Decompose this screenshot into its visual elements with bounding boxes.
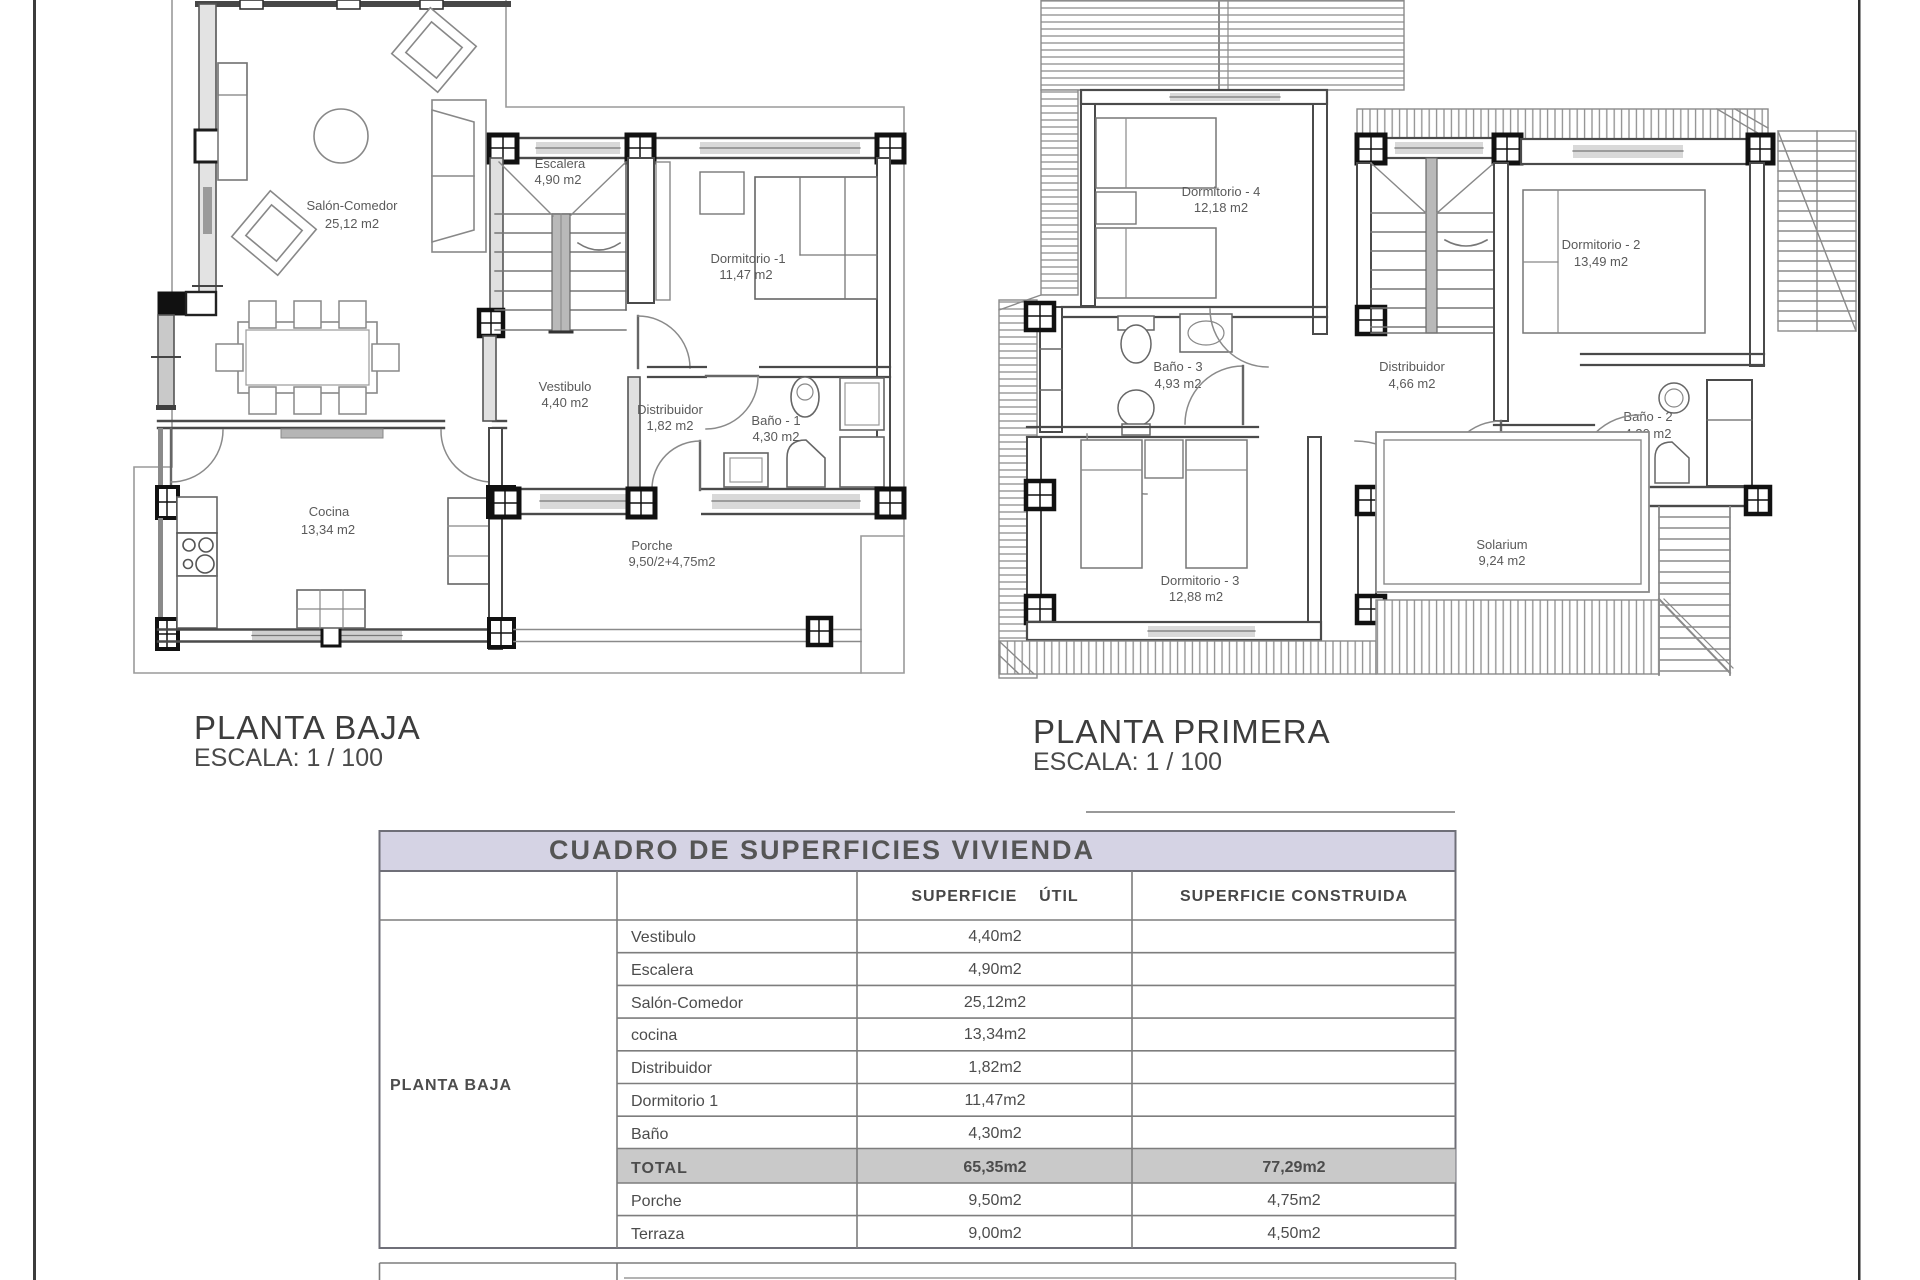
svg-text:4,90m2: 4,90m2 — [968, 961, 1021, 978]
svg-text:Dormitorio - 3: Dormitorio - 3 — [1161, 573, 1240, 588]
svg-text:12,18 m2: 12,18 m2 — [1194, 200, 1248, 215]
svg-text:CUADRO DE SUPERFICIES VIVIEND: CUADRO DE SUPERFICIES VIVIENDA — [549, 835, 1095, 865]
svg-text:Dormitorio 1: Dormitorio 1 — [631, 1093, 718, 1110]
svg-text:PLANTA PRIMERA: PLANTA PRIMERA — [1033, 713, 1331, 750]
svg-text:Solarium: Solarium — [1476, 537, 1527, 552]
svg-text:Vestibulo: Vestibulo — [539, 379, 592, 394]
svg-text:Baño: Baño — [631, 1126, 668, 1143]
svg-text:SUPERFICIE CONSTRUIDA: SUPERFICIE CONSTRUIDA — [1180, 888, 1408, 905]
svg-text:Salón-Comedor: Salón-Comedor — [631, 995, 744, 1012]
svg-text:Baño - 1: Baño - 1 — [751, 413, 800, 428]
svg-text:Baño - 3: Baño - 3 — [1153, 359, 1202, 374]
svg-text:1,82m2: 1,82m2 — [968, 1059, 1021, 1076]
svg-text:cocina: cocina — [631, 1027, 677, 1044]
svg-text:4,90 m2: 4,90 m2 — [535, 172, 582, 187]
svg-text:Dormitorio -1: Dormitorio -1 — [710, 251, 785, 266]
svg-text:Porche: Porche — [631, 1193, 682, 1210]
svg-text:4,93 m2: 4,93 m2 — [1155, 376, 1202, 391]
svg-text:PLANTA BAJA: PLANTA BAJA — [194, 709, 421, 746]
svg-text:25,12 m2: 25,12 m2 — [325, 216, 379, 231]
svg-text:4,40 m2: 4,40 m2 — [542, 395, 589, 410]
svg-text:ESCALA: 1 / 100: ESCALA: 1 / 100 — [194, 744, 383, 772]
svg-text:Terraza: Terraza — [631, 1226, 684, 1243]
svg-text:Escalera: Escalera — [535, 156, 586, 171]
svg-text:25,12m2: 25,12m2 — [964, 994, 1026, 1011]
svg-text:13,49 m2: 13,49 m2 — [1574, 254, 1628, 269]
svg-text:9,24 m2: 9,24 m2 — [1479, 553, 1526, 568]
svg-text:4,75m2: 4,75m2 — [1267, 1192, 1320, 1209]
svg-text:Dormitorio - 4: Dormitorio - 4 — [1182, 184, 1261, 199]
svg-text:Baño - 2: Baño - 2 — [1623, 409, 1672, 424]
svg-text:Distribuidor: Distribuidor — [1379, 359, 1445, 374]
svg-text:4,30 m2: 4,30 m2 — [753, 429, 800, 444]
svg-text:4,30m2: 4,30m2 — [968, 1125, 1021, 1142]
svg-text:9,50m2: 9,50m2 — [968, 1192, 1021, 1209]
svg-text:12,88 m2: 12,88 m2 — [1169, 589, 1223, 604]
svg-text:Salón-Comedor: Salón-Comedor — [306, 198, 398, 213]
svg-text:11,47m2: 11,47m2 — [964, 1092, 1025, 1109]
svg-text:11,47 m2: 11,47 m2 — [719, 267, 772, 282]
svg-text:1,82 m2: 1,82 m2 — [647, 418, 694, 433]
svg-text:13,34 m2: 13,34 m2 — [301, 522, 355, 537]
svg-text:TOTAL: TOTAL — [631, 1160, 688, 1177]
svg-text:Distribuidor: Distribuidor — [631, 1060, 713, 1077]
svg-text:9,50/2+4,75m2: 9,50/2+4,75m2 — [628, 554, 715, 569]
svg-text:ESCALA: 1 / 100: ESCALA: 1 / 100 — [1033, 748, 1222, 776]
svg-text:65,35m2: 65,35m2 — [963, 1159, 1026, 1176]
svg-text:SUPERFICIE ÚTIL: SUPERFICIE ÚTIL — [911, 886, 1078, 905]
svg-text:4,66 m2: 4,66 m2 — [1389, 376, 1436, 391]
svg-text:4,40m2: 4,40m2 — [968, 928, 1021, 945]
svg-text:77,29m2: 77,29m2 — [1262, 1159, 1325, 1176]
svg-text:4,50m2: 4,50m2 — [1267, 1225, 1320, 1242]
svg-text:Escalera: Escalera — [631, 962, 693, 979]
svg-text:13,34m2: 13,34m2 — [964, 1026, 1026, 1043]
svg-text:9,00m2: 9,00m2 — [968, 1225, 1021, 1242]
svg-text:Cocina: Cocina — [309, 504, 350, 519]
svg-text:Distribuidor: Distribuidor — [637, 402, 703, 417]
svg-text:Porche: Porche — [631, 538, 672, 553]
svg-text:Vestibulo: Vestibulo — [631, 929, 696, 946]
svg-text:PLANTA BAJA: PLANTA BAJA — [390, 1077, 512, 1094]
svg-text:Dormitorio - 2: Dormitorio - 2 — [1562, 237, 1641, 252]
